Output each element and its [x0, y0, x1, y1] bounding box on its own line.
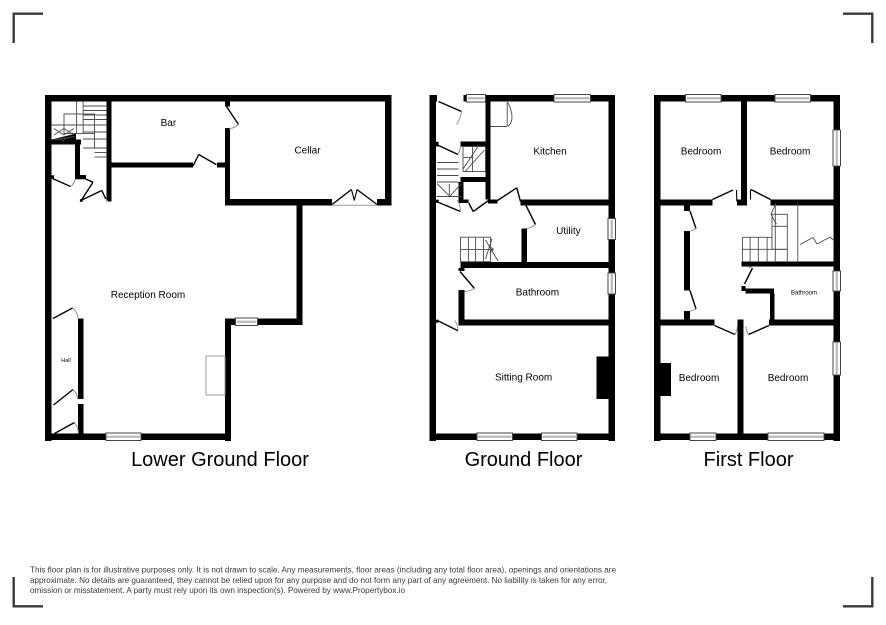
svg-text:approximate. No details are gu: approximate. No details are guaranteed, …	[30, 576, 607, 585]
svg-text:Bedroom: Bedroom	[768, 373, 809, 384]
svg-text:Bedroom: Bedroom	[679, 373, 720, 384]
svg-text:Cellar: Cellar	[294, 146, 321, 157]
svg-text:omission or misstatement. A pa: omission or misstatement. A party must r…	[30, 586, 406, 595]
svg-text:Reception Room: Reception Room	[111, 290, 185, 301]
svg-text:Ground Floor: Ground Floor	[465, 449, 583, 471]
svg-text:Bedroom: Bedroom	[770, 147, 811, 158]
svg-text:Utility: Utility	[556, 226, 580, 237]
svg-text:First Floor: First Floor	[704, 449, 794, 471]
svg-text:Bathroom: Bathroom	[791, 291, 817, 297]
svg-text:Kitchen: Kitchen	[533, 147, 566, 158]
svg-text:Lower Ground Floor: Lower Ground Floor	[131, 449, 309, 471]
svg-text:Sitting Room: Sitting Room	[495, 373, 552, 384]
svg-text:This floor plan is for illustr: This floor plan is for illustrative purp…	[30, 565, 617, 574]
svg-text:Bar: Bar	[161, 118, 177, 129]
svg-text:Hall: Hall	[61, 358, 70, 364]
svg-text:Bedroom: Bedroom	[681, 147, 722, 158]
svg-text:Bathroom: Bathroom	[516, 288, 559, 299]
